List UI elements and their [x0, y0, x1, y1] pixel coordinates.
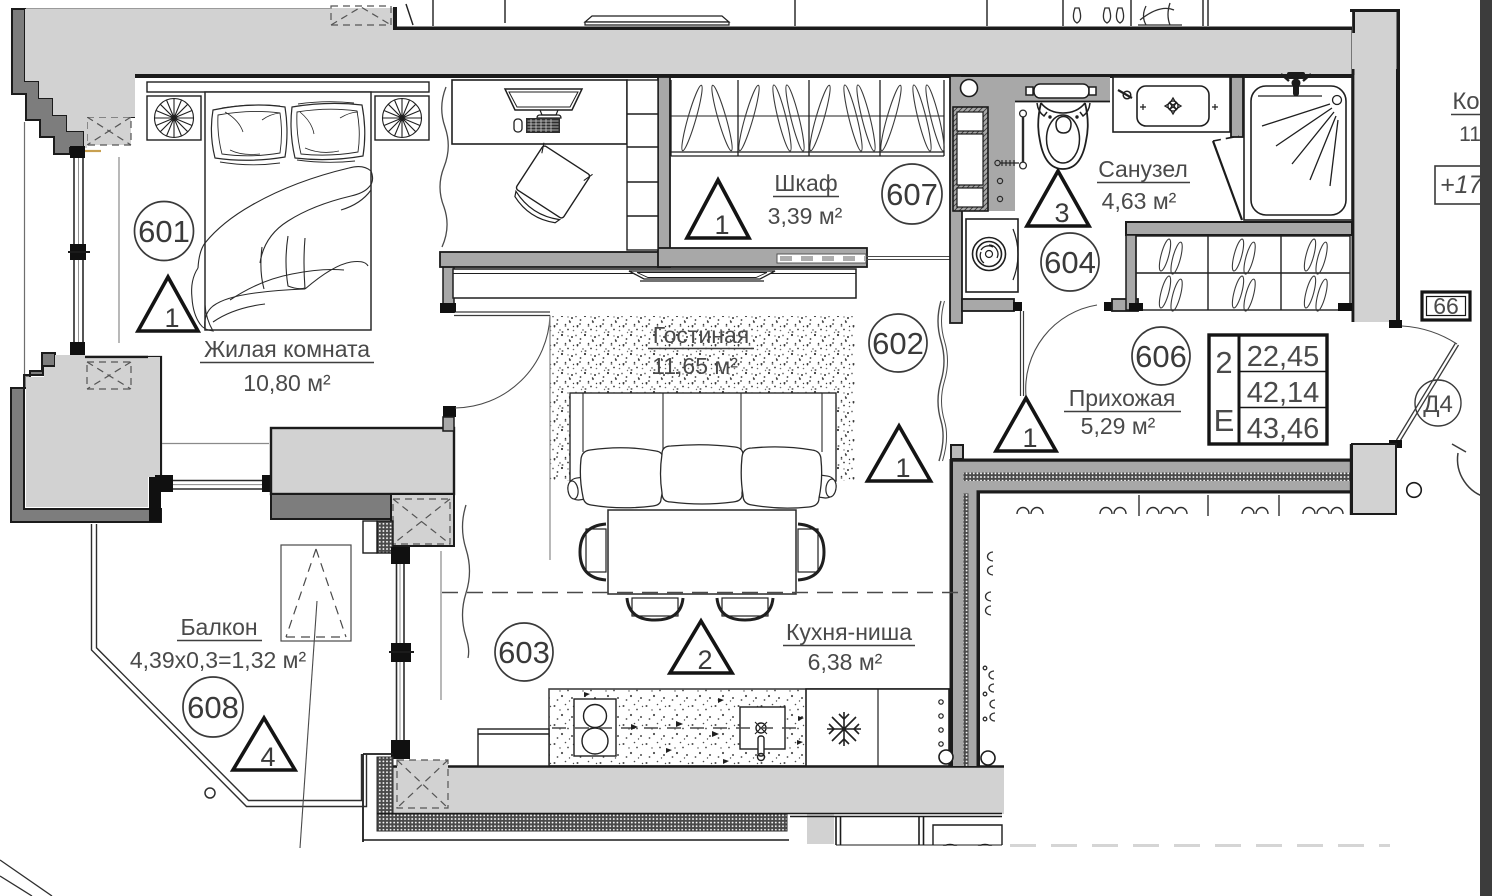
svg-text:3: 3: [1054, 198, 1069, 228]
svg-text:6,38 м²: 6,38 м²: [808, 649, 883, 675]
svg-text:Е: Е: [1214, 403, 1235, 438]
svg-text:1: 1: [714, 210, 729, 240]
svg-text:607: 607: [886, 177, 938, 212]
svg-text:603: 603: [498, 635, 550, 670]
svg-text:604: 604: [1044, 245, 1096, 280]
svg-text:4,39х0,3=1,32 м²: 4,39х0,3=1,32 м²: [130, 647, 307, 673]
svg-text:Санузел: Санузел: [1098, 156, 1188, 182]
svg-text:5,29 м²: 5,29 м²: [1081, 413, 1156, 439]
svg-text:602: 602: [872, 326, 924, 361]
svg-text:+17: +17: [1440, 171, 1484, 199]
svg-text:1: 1: [895, 453, 910, 483]
svg-text:2: 2: [1215, 345, 1232, 380]
svg-text:Жилая комната: Жилая комната: [204, 336, 370, 362]
svg-text:Д4: Д4: [1423, 391, 1453, 418]
svg-text:Ко: Ко: [1452, 88, 1479, 115]
svg-text:601: 601: [138, 214, 190, 249]
svg-text:2: 2: [697, 645, 712, 675]
svg-text:4,63 м²: 4,63 м²: [1102, 188, 1177, 214]
svg-text:10,80 м²: 10,80 м²: [243, 370, 331, 396]
svg-text:Балкон: Балкон: [180, 614, 257, 640]
svg-text:1: 1: [164, 303, 179, 333]
svg-text:608: 608: [187, 690, 239, 725]
svg-text:Прихожая: Прихожая: [1069, 385, 1176, 411]
svg-text:3,39 м²: 3,39 м²: [768, 203, 843, 229]
svg-text:43,46: 43,46: [1247, 413, 1320, 445]
svg-text:4: 4: [260, 742, 275, 772]
svg-text:11,65 м²: 11,65 м²: [652, 353, 738, 379]
svg-text:11: 11: [1459, 123, 1481, 146]
svg-text:66: 66: [1433, 293, 1459, 319]
svg-text:42,14: 42,14: [1247, 377, 1320, 409]
svg-text:606: 606: [1135, 339, 1187, 374]
svg-text:Шкаф: Шкаф: [774, 170, 837, 196]
svg-text:1: 1: [1022, 423, 1037, 453]
svg-text:Гостиная: Гостиная: [653, 322, 750, 348]
svg-text:22,45: 22,45: [1247, 341, 1320, 373]
svg-text:Кухня-ниша: Кухня-ниша: [786, 619, 912, 645]
